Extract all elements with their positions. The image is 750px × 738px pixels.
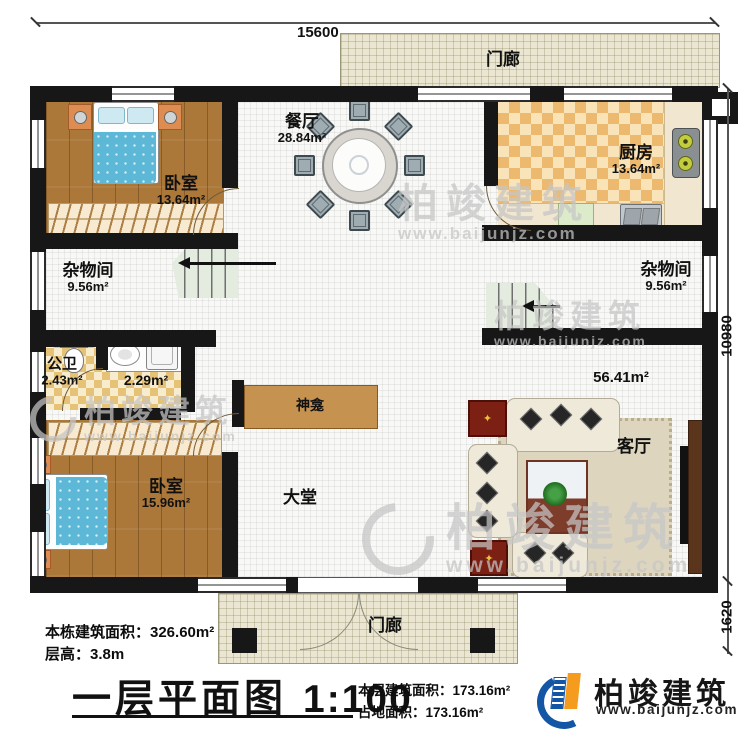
watermark-name: 柏竣建筑 — [84, 395, 237, 429]
room-name: 公卫 — [41, 356, 82, 373]
watermark-name: 柏竣建筑 — [446, 502, 691, 555]
side-table: ✦ — [468, 400, 507, 437]
watermark-logo-icon — [347, 489, 448, 590]
room-label-porch-bottom: 门廊 — [368, 616, 402, 636]
wall-bedroombottom-right — [222, 452, 238, 577]
room-name: 卧室 — [157, 174, 205, 193]
sliding-door — [418, 86, 530, 102]
window — [112, 86, 174, 102]
window — [30, 252, 46, 310]
blanket — [94, 129, 156, 184]
sofa-pillow — [580, 408, 603, 431]
dining-chair — [349, 100, 370, 121]
sofa-pillow — [476, 452, 499, 475]
watermark: 柏竣建筑 www.baijunjz.com — [398, 183, 590, 243]
watermark-url: www.baijunjz.com — [84, 429, 237, 444]
room-area: 2.29m² — [124, 372, 168, 388]
dim-right-lower-label: 1620 — [719, 600, 736, 633]
brand-logo-icon — [536, 671, 588, 721]
room-label-shrine: 神龛 — [296, 397, 324, 415]
pillow — [127, 107, 154, 124]
room-name: 餐厅 — [278, 112, 326, 131]
dim-right-label: 10980 — [719, 315, 736, 357]
watermark-url: www.baijunjz.com — [446, 555, 691, 577]
floor-area: 本层建筑面积：173.16m² — [358, 679, 510, 699]
room-name: 杂物间 — [63, 261, 114, 280]
room-area: 9.56m² — [641, 279, 692, 294]
room-area: 13.64m² — [157, 193, 205, 208]
room-area: 28.84m² — [278, 131, 326, 146]
sofa-pillow — [550, 404, 573, 427]
watermark-logo-icon — [21, 387, 86, 452]
dining-chair — [349, 210, 370, 231]
dim-top-label: 15600 — [297, 24, 339, 41]
brand-url: www.baijunjz.com — [596, 702, 738, 717]
room-area: 13.64m² — [612, 162, 660, 177]
room-label-bath: 公卫 2.43m² — [41, 356, 82, 387]
blanket — [53, 477, 108, 545]
room-name: 客厅 — [617, 437, 651, 456]
window — [564, 86, 672, 102]
lamp-icon — [74, 111, 87, 124]
room-name: 门廊 — [486, 50, 520, 69]
porch-column — [232, 628, 257, 653]
dim-line-top — [36, 22, 715, 24]
sofa-top — [506, 398, 620, 452]
lamp-icon — [164, 111, 177, 124]
wall-bedroomtop-bottom — [30, 233, 238, 249]
porch-column — [470, 628, 495, 653]
room-area: 15.96m² — [142, 496, 190, 511]
room-name: 厨房 — [612, 143, 660, 162]
room-label-bedroom-top: 卧室 13.64m² — [157, 174, 205, 208]
room-label-living: 客厅 — [617, 437, 651, 457]
stairs-left-arrow-line — [190, 262, 276, 265]
watermark-url: www.baijunjz.com — [398, 225, 590, 243]
window — [30, 532, 46, 576]
room-label-storage-right: 杂物间 9.56m² — [641, 260, 692, 294]
bed-top — [93, 102, 159, 184]
window — [478, 577, 566, 593]
watermark-name: 柏竣建筑 — [398, 183, 590, 225]
burner-icon — [678, 156, 693, 171]
title-underline — [72, 715, 353, 718]
dining-chair — [294, 155, 315, 176]
room-label-hall: 大堂 — [283, 488, 317, 508]
wall-bedroomtop-right — [222, 86, 238, 188]
room-label-storage-left: 杂物间 9.56m² — [63, 261, 114, 295]
room-name: 杂物间 — [641, 260, 692, 279]
dining-table-center — [349, 155, 369, 175]
area-value: 56.41m² — [593, 369, 649, 386]
watermark: 柏竣建筑 www.baijunjz.com — [30, 395, 237, 443]
dim-line-right — [727, 88, 729, 654]
sink-basin — [641, 208, 660, 225]
sink-basin — [623, 208, 642, 225]
watermark-name: 柏竣建筑 — [494, 300, 647, 334]
sofa-pillow — [520, 408, 543, 431]
nightstand — [158, 104, 182, 130]
floor-plan-canvas: ✦ ✦ 门廊 餐厅 28 — [0, 0, 750, 738]
burner-icon — [678, 134, 693, 149]
window — [198, 577, 286, 593]
nightstand — [68, 104, 92, 130]
wall-bath-divider — [96, 340, 108, 370]
room-label-porch-top: 门廊 — [486, 50, 520, 70]
land-area: 占地面积：173.16m² — [358, 701, 483, 721]
pillow — [98, 107, 125, 124]
room-name: 门廊 — [368, 616, 402, 635]
room-name: 大堂 — [283, 488, 317, 507]
room-area: 9.56m² — [63, 280, 114, 295]
window — [702, 256, 718, 312]
window — [30, 120, 46, 168]
watermark: 柏竣建筑 www.baijunjz.com — [494, 300, 647, 348]
room-label-bedroom-bottom: 卧室 15.96m² — [142, 477, 190, 511]
floor-height: 层高：3.8m — [45, 643, 124, 664]
hall-area-label: 56.41m² — [593, 369, 649, 387]
room-label-kitchen: 厨房 13.64m² — [612, 143, 660, 177]
room-name: 神龛 — [296, 397, 324, 413]
washer-lid — [151, 345, 173, 365]
dining-chair — [404, 155, 425, 176]
room-area: 2.43m² — [41, 373, 82, 388]
window — [702, 120, 718, 208]
watermark-url: www.baijunjz.com — [494, 334, 647, 349]
watermark: 柏竣建筑 www.baijunjz.com — [362, 502, 691, 577]
total-building-area: 本栋建筑面积：326.60m² — [45, 621, 214, 642]
room-name: 卧室 — [142, 477, 190, 496]
room-label-dining: 餐厅 28.84m² — [278, 112, 326, 146]
porch-top — [340, 33, 720, 88]
main-entrance-opening — [298, 577, 418, 593]
window — [30, 438, 46, 484]
room-label-laundry: 2.29m² — [124, 372, 168, 390]
stairs-left-arrow-icon — [178, 257, 190, 269]
